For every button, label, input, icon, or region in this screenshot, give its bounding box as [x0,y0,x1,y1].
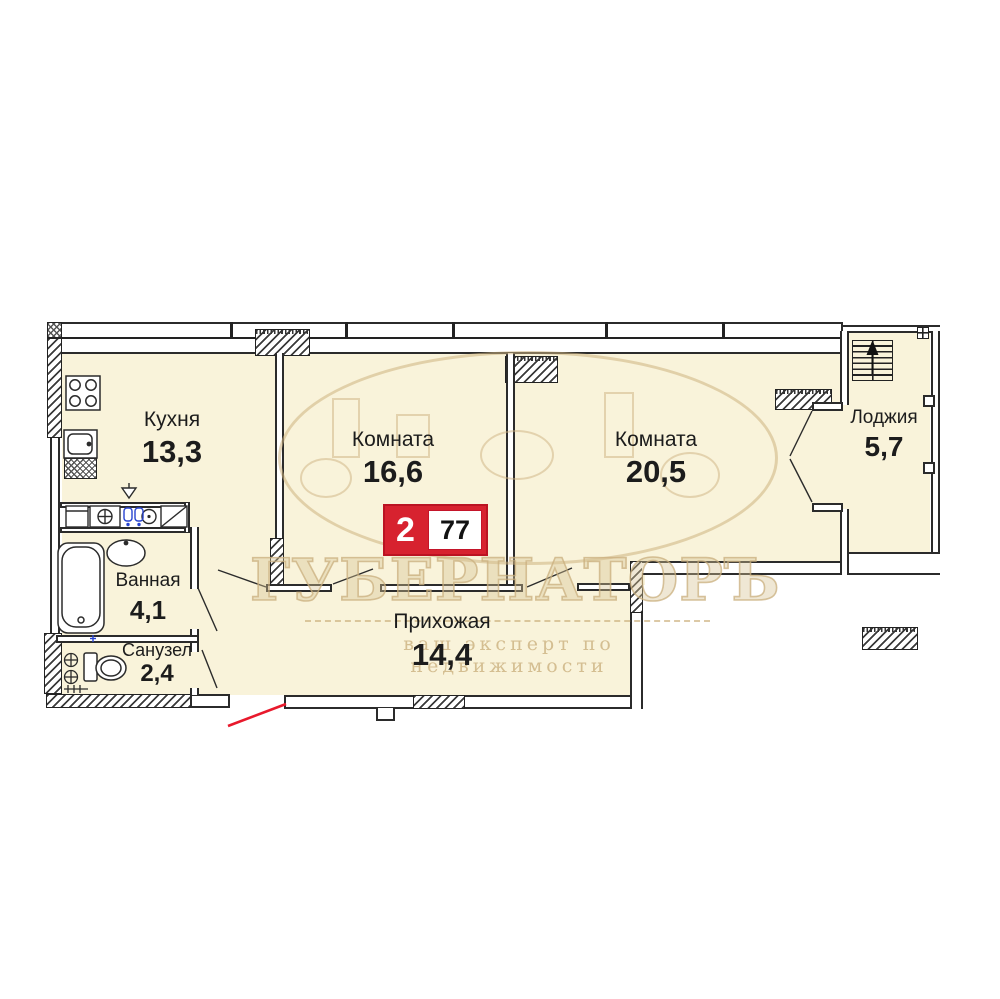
room-area: 5,7 [834,432,934,462]
door-swing [198,588,217,631]
kitchen-fixtures [64,376,100,458]
door-swing [790,411,812,456]
washing-machine-icon [66,506,88,527]
door-swing [218,570,266,587]
room-name: Комната [318,429,468,452]
stairs-arrow-icon [867,340,879,374]
room-label-kitchen: Кухня 13,3 [97,409,247,468]
room-label-room2: Комната 20,5 [581,429,731,488]
room-name: Комната [581,429,731,452]
door-swing [790,459,812,502]
room-area: 20,5 [581,455,731,488]
badge-total-area: 77 [428,510,482,550]
room-area: 13,3 [97,435,247,468]
room-label-loggia: Лоджия 5,7 [834,408,934,462]
room-area: 4,1 [98,596,198,624]
room-label-wc: Санузел 2,4 [107,641,207,687]
room-area: 16,6 [318,455,468,488]
room-name: Лоджия [834,408,934,429]
vent-icon [122,488,136,498]
room-area: 2,4 [107,661,207,687]
room-label-room1: Комната 16,6 [318,429,468,488]
room-name: Санузел [107,641,207,660]
badge-rooms-count: 2 [385,509,426,552]
toilet-icon [84,653,97,681]
room-area: 14,4 [367,638,517,671]
room-label-bathroom: Ванная 4,1 [98,571,198,624]
room-name: Кухня [97,409,247,432]
room-name: Ванная [98,571,198,592]
door-swing [333,569,373,584]
apartment-badge: 2 77 [383,504,488,556]
room-label-hallway: Прихожая 14,4 [367,611,517,671]
entry-door-swing [228,704,286,726]
door-swing [527,568,572,587]
floor-plan: ГУБЕРНАТОРЪ ваш эксперт по недвижимости … [0,0,1000,999]
fixtures-layer [0,0,1000,999]
room-name: Прихожая [367,611,517,634]
